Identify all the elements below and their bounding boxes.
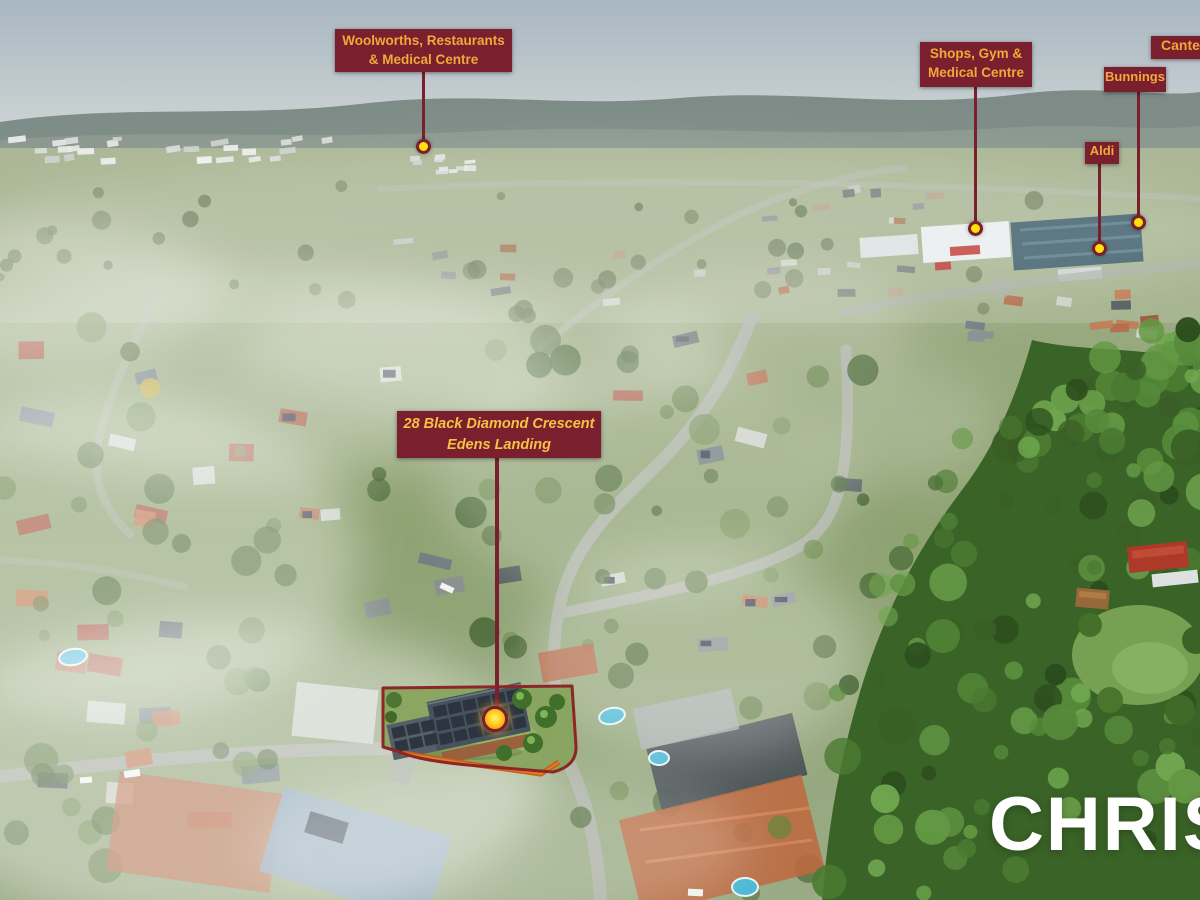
label-bunnings: Bunnings [1104, 67, 1166, 92]
label-woolworths-line2: & Medical Centre [335, 51, 512, 70]
marker-bunnings [1131, 215, 1146, 230]
leader-woolworths [422, 72, 425, 139]
label-property-address: 28 Black Diamond Crescent Edens Landing [397, 411, 601, 458]
marker-aldi [1092, 241, 1107, 256]
aerial-photo: Woolworths, Restaurants & Medical Centre… [0, 0, 1200, 900]
label-woolworths-line1: Woolworths, Restaurants [335, 32, 512, 51]
leader-bunnings [1137, 92, 1140, 215]
marker-woolworths [416, 139, 431, 154]
label-aldi-line1: Aldi [1085, 142, 1119, 159]
label-canterbury-line1: Canter [1161, 36, 1200, 55]
label-shops-gym-line2: Medical Centre [920, 64, 1032, 83]
palm-tree [496, 745, 512, 761]
label-canterbury: Canter [1151, 36, 1200, 59]
agency-watermark: CHRIS [989, 787, 1200, 863]
label-property-line1: 28 Black Diamond Crescent [397, 414, 601, 435]
label-shops-gym-line1: Shops, Gym & [920, 45, 1032, 64]
leader-shops-gym [974, 87, 977, 221]
label-woolworths: Woolworths, Restaurants & Medical Centre [335, 29, 512, 72]
label-aldi: Aldi [1085, 142, 1119, 164]
marker-shops-gym [968, 221, 983, 236]
label-shops-gym: Shops, Gym & Medical Centre [920, 42, 1032, 87]
leader-aldi [1098, 164, 1101, 241]
palm-tree [549, 694, 565, 710]
label-property-line2: Edens Landing [397, 435, 601, 456]
leader-property [495, 458, 499, 707]
marker-property [482, 706, 508, 732]
label-bunnings-line1: Bunnings [1104, 67, 1166, 86]
